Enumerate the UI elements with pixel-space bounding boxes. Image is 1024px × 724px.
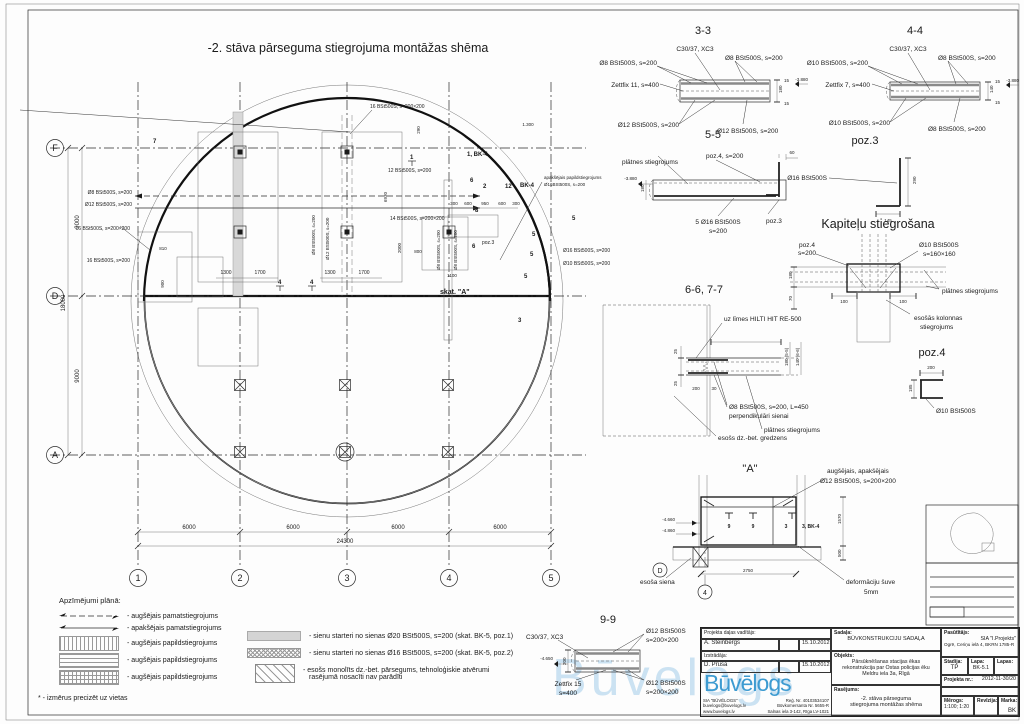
svg-text:-3.880: -3.880: [795, 77, 808, 82]
svg-text:s=200×200: s=200×200: [646, 689, 679, 696]
svg-text:12 BSt500S, s=200: 12 BSt500S, s=200: [388, 168, 431, 174]
svg-text:3, BK-4: 3, BK-4: [802, 524, 819, 530]
svg-text:A: A: [52, 450, 58, 460]
svg-text:1, BK-4: 1, BK-4: [467, 152, 488, 158]
sheets-cell: Lapas:: [994, 657, 1019, 675]
svg-text:Ø8 BSt500S, s=200: Ø8 BSt500S, s=200: [938, 55, 996, 62]
svg-text:6: 6: [472, 244, 476, 250]
svg-text:16 BSt500S, s=200×200: 16 BSt500S, s=200×200: [370, 104, 425, 110]
detail-a-drawing: [653, 475, 846, 599]
svg-text:290: 290: [912, 176, 917, 184]
section-4-4: 4-4 C30/37, XC3 Ø10 BSt500S, s=200 Ø8 BS…: [810, 20, 1024, 140]
svg-text:3-3: 3-3: [695, 25, 711, 37]
svg-text:8: 8: [475, 208, 479, 214]
drawing-sheet: Būvelogs -2. stāva pārseguma stiegrojuma…: [0, 0, 1024, 724]
svg-text:4-4: 4-4: [907, 25, 923, 37]
svg-text:180 (5-5): 180 (5-5): [784, 347, 789, 366]
svg-text:Ø12 BSt500S, s=200: Ø12 BSt500S, s=200: [325, 217, 330, 260]
legend-item: - augšējais papildstiegrojums: [59, 653, 217, 668]
svg-text:1100: 1100: [447, 273, 457, 278]
legend-item: - augšējais papildstiegrojums: [59, 670, 217, 685]
left-dimensions: 9000 9000 18000: [61, 145, 85, 458]
legend-item: - augšējais papildstiegrojums: [59, 636, 217, 651]
legend-item: - apakšējais pamatstiegrojums: [59, 624, 222, 632]
svg-text:apakšējais papildstiegrojums: apakšējais papildstiegrojums: [544, 175, 602, 180]
svg-text:14 BSt500S, s=200×200: 14 BSt500S, s=200×200: [390, 216, 445, 222]
svg-text:1700: 1700: [254, 270, 265, 276]
svg-text:Zettfix 11, s=400: Zettfix 11, s=400: [611, 82, 659, 89]
designer1-name: A. Šteinbergs: [701, 639, 779, 651]
svg-text:stiegrojums: stiegrojums: [920, 324, 954, 331]
svg-text:2750: 2750: [743, 568, 754, 573]
svg-text:Ø8 BSt500S, s=200, L=450: Ø8 BSt500S, s=200, L=450: [729, 404, 809, 411]
svg-text:Zettfix 7, s=400: Zettfix 7, s=400: [825, 82, 870, 89]
svg-text:600: 600: [498, 201, 506, 206]
svg-text:perpendikulāri sienai: perpendikulāri sienai: [729, 413, 789, 420]
company-info: SIA "BŪVĒLOGS"buvelogs@buvelogs.lvwww.bu…: [703, 698, 759, 714]
svg-text:BK-4: BK-4: [520, 183, 535, 189]
svg-text:290: 290: [416, 126, 421, 134]
svg-text:6000: 6000: [391, 525, 405, 531]
svg-text:5 Ø16 BSt500S: 5 Ø16 BSt500S: [695, 219, 741, 226]
svg-text:5: 5: [532, 232, 536, 238]
svg-text:1700: 1700: [358, 270, 369, 276]
svg-text:15: 15: [784, 78, 790, 83]
svg-text:9: 9: [752, 524, 755, 530]
svg-text:24300: 24300: [337, 539, 354, 545]
project-no-cell: Projekta nr.: 2012-11-30/20: [941, 675, 1019, 687]
svg-text:9000: 9000: [75, 369, 81, 383]
object-cell: Objekts: Pārsūknēšanas stacijas ēkas rek…: [831, 651, 941, 685]
svg-text:Ø12 BSt500S, s=200×200: Ø12 BSt500S, s=200×200: [820, 478, 896, 485]
svg-text:Ø16 BSt500S: Ø16 BSt500S: [787, 175, 827, 182]
svg-text:5-5: 5-5: [705, 129, 721, 141]
title-block: Projekta daļas vadītājs: A. Šteinbergs 1…: [700, 627, 1020, 717]
svg-text:180: 180: [778, 85, 783, 93]
svg-text:100: 100: [899, 299, 907, 304]
svg-text:Ø8 BSt500S, s=200: Ø8 BSt500S, s=200: [599, 60, 657, 67]
svg-text:6930: 6930: [383, 191, 388, 202]
svg-text:200: 200: [927, 365, 935, 370]
svg-text:Ø8 BSt500S, s=200: Ø8 BSt500S, s=200: [725, 55, 783, 62]
section-cell: Sadaļa: BŪVKONSTRUKCIJU SADAĻA: [831, 628, 941, 651]
svg-text:2: 2: [483, 184, 487, 190]
svg-text:poz.4, s=200: poz.4, s=200: [706, 153, 744, 160]
drawing-name-cell: Rasējums: -2. stāva pārseguma stiegrojum…: [831, 685, 941, 716]
svg-text:16 BSt500S, s=200: 16 BSt500S, s=200: [87, 258, 130, 264]
role2-label: Izstrādāja:: [701, 651, 831, 661]
legend-item: - augšējais pamatstiegrojums: [59, 612, 218, 620]
section-6-6-7-7: 6-6, 7-7 uz līmes HILTI HIT RE-500 Ø8 BS…: [596, 276, 831, 466]
plan-annotations: 16 BSt500S, s=200×200 Ø8 BSt500S, s=200 …: [76, 104, 611, 296]
svg-text:D: D: [657, 568, 662, 575]
svg-text:Kapiteļu stiegrošana: Kapiteļu stiegrošana: [821, 217, 934, 231]
svg-text:2000: 2000: [397, 242, 402, 253]
scale-cell: Mērogs:1:100; 1:20: [941, 696, 974, 716]
svg-text:12: 12: [505, 184, 512, 190]
svg-text:esošās kolonnas: esošās kolonnas: [914, 315, 963, 322]
section-3-3: 3-3 C30/37, XC3 Ø8 BSt500S, s=200 Ø8 BSt…: [595, 20, 813, 140]
role1-label: Projekta daļas vadītājs:: [701, 628, 831, 639]
svg-text:140: 140: [989, 85, 994, 93]
poz4-drawing: [911, 370, 943, 408]
svg-text:C30/37, XC3: C30/37, XC3: [889, 46, 927, 53]
company-reg-info: Reģ. Nr. 40103534107Būvkomersanta Nr. 56…: [761, 698, 829, 714]
svg-text:1300: 1300: [220, 270, 231, 276]
svg-text:800: 800: [414, 249, 422, 254]
legend-item: - sienu starteri no sienas Ø20 BSt500S, …: [247, 631, 513, 641]
svg-text:-4.660: -4.660: [662, 517, 675, 522]
legend-item: - esošs monolīts dz.-bet. pārsegums, teh…: [255, 664, 489, 683]
floor-plan: -2. stāva pārseguma stiegrojuma montāžas…: [20, 20, 620, 610]
svg-text:Ø12 BSt500S, s=200: Ø12 BSt500S, s=200: [85, 202, 132, 208]
signature1: [779, 639, 799, 651]
stage-cell: Stadija:TP: [941, 657, 968, 675]
reinforcement-zones: [20, 110, 498, 366]
svg-text:plātnes stiegrojums: plātnes stiegrojums: [942, 288, 999, 295]
file-cell: Fails:: [941, 687, 1019, 696]
section-9-9-drawing: [554, 634, 644, 680]
svg-text:9-9: 9-9: [600, 614, 616, 626]
svg-text:3: 3: [785, 524, 788, 530]
legend: Apzīmējumi plānā: - augšējais pamatstieg…: [55, 596, 695, 611]
svg-text:15: 15: [784, 101, 790, 106]
svg-text:-3.880: -3.880: [1006, 78, 1019, 83]
svg-text:-3.880: -3.880: [624, 176, 637, 181]
svg-text:s=400: s=400: [559, 690, 577, 697]
svg-text:5: 5: [530, 252, 534, 258]
svg-text:D: D: [52, 291, 59, 301]
svg-text:Zettfix 15: Zettfix 15: [555, 681, 582, 688]
svg-text:deformāciju šuve: deformāciju šuve: [846, 579, 896, 586]
svg-text:esoša siena: esoša siena: [640, 579, 675, 586]
svg-text:"A": "A": [742, 463, 757, 475]
svg-text:C30/37, XC3: C30/37, XC3: [676, 46, 714, 53]
svg-text:plātnes stiegrojums: plātnes stiegrojums: [764, 427, 821, 434]
site-key-shape: [951, 513, 993, 554]
svg-text:F: F: [52, 143, 58, 153]
detail-a: "A" augšējais, apakšējais Ø12 BSt500S, s…: [636, 450, 926, 610]
svg-text:Ø10 BSt500S, s=200: Ø10 BSt500S, s=200: [829, 120, 891, 127]
client-cell: Pasūtītājs: SIA "I.Projekts" Ogrē, Ceriņ…: [941, 628, 1019, 657]
svg-text:200: 200: [562, 657, 567, 665]
svg-text:5mm: 5mm: [864, 589, 878, 596]
svg-text:600: 600: [464, 201, 472, 206]
svg-text:200: 200: [692, 386, 700, 391]
svg-text:15: 15: [995, 100, 1001, 105]
svg-text:1.300: 1.300: [522, 122, 534, 127]
legend-item: - sienu starteri no sienas Ø16 BSt500S, …: [247, 648, 513, 658]
svg-text:300: 300: [512, 201, 520, 206]
svg-text:300: 300: [450, 201, 458, 206]
plan-title: -2. stāva pārseguma stiegrojuma montāžas…: [208, 41, 489, 55]
svg-text:Ø8 BSt500S, s=200: Ø8 BSt500S, s=200: [453, 230, 458, 270]
svg-text:esošs dz.-bet. gredzens: esošs dz.-bet. gredzens: [718, 435, 788, 442]
date1: 15.10.2012: [799, 639, 831, 651]
svg-text:Ø16 BSt500S, s=200: Ø16 BSt500S, s=200: [563, 248, 610, 254]
svg-text:6000: 6000: [493, 525, 507, 531]
svg-text:1: 1: [410, 155, 414, 161]
svg-text:900: 900: [160, 280, 165, 288]
svg-text:6000: 6000: [182, 525, 196, 531]
mark-cell: Marka:BK: [998, 696, 1019, 716]
revision-cell: Revīzija:: [974, 696, 998, 716]
svg-text:Ø10 BSt500S, s=200: Ø10 BSt500S, s=200: [807, 60, 869, 67]
svg-text:16 BSt500S, s=200×200: 16 BSt500S, s=200×200: [76, 226, 131, 232]
svg-text:Ø12 BSt500S: Ø12 BSt500S: [646, 680, 686, 687]
svg-text:9: 9: [728, 524, 731, 530]
svg-text:Ø10 BSt500S: Ø10 BSt500S: [919, 242, 959, 249]
svg-text:500: 500: [837, 549, 842, 557]
svg-text:4: 4: [278, 280, 282, 286]
section-9-9: 9-9 C30/37, XC3 Ø12 BSt500S s=200×200 Ze…: [518, 606, 713, 721]
svg-text:5: 5: [548, 573, 553, 583]
svg-text:poz.4: poz.4: [799, 242, 815, 249]
svg-text:-4.650: -4.650: [540, 656, 553, 661]
svg-text:25: 25: [673, 380, 678, 386]
svg-text:poz.3: poz.3: [852, 135, 879, 147]
svg-text:Ø10 BSt500S, s=200: Ø10 BSt500S, s=200: [563, 261, 610, 267]
svg-text:25: 25: [673, 348, 678, 354]
svg-text:C30/37, XC3: C30/37, XC3: [526, 634, 564, 641]
svg-text:18000: 18000: [61, 294, 67, 311]
svg-text:140 (6-6): 140 (6-6): [795, 347, 800, 366]
svg-text:s=200: s=200: [798, 250, 816, 257]
svg-text:1: 1: [135, 573, 140, 583]
svg-text:augšējais, apakšējais: augšējais, apakšējais: [827, 468, 890, 475]
svg-text:6000: 6000: [286, 525, 300, 531]
svg-text:uz līmes HILTI HIT RE-500: uz līmes HILTI HIT RE-500: [724, 316, 802, 323]
svg-text:810: 810: [159, 246, 167, 251]
bottom-dimensions: 6000 6000 6000 6000 24300: [135, 525, 554, 549]
svg-text:6-6, 7-7: 6-6, 7-7: [685, 284, 723, 296]
svg-text:15: 15: [995, 79, 1001, 84]
svg-text:Ø8 BSt500S, s=200: Ø8 BSt500S, s=200: [311, 215, 316, 255]
svg-text:plātnes stiegrojums: plātnes stiegrojums: [622, 159, 679, 166]
svg-text:180: 180: [640, 184, 645, 192]
section-key-lines: [930, 577, 1014, 617]
svg-text:1300: 1300: [324, 270, 335, 276]
svg-text:Ø12 BSt500S: Ø12 BSt500S: [646, 628, 686, 635]
section-3-3-drawing: [657, 53, 808, 124]
svg-text:s=160×160: s=160×160: [923, 251, 956, 258]
svg-text:4: 4: [310, 280, 314, 286]
svg-text:Ø16BSt500S, s=200: Ø16BSt500S, s=200: [544, 182, 586, 187]
poz4-detail: poz.4 200 185 Ø10 BSt500S: [876, 336, 1024, 434]
legend-title: Apzīmējumi plānā:: [59, 596, 695, 605]
section-4-4-drawing: [868, 53, 1019, 122]
existing-column-symbols: [235, 380, 454, 462]
svg-text:4: 4: [446, 573, 451, 583]
svg-text:skat. "A": skat. "A": [440, 289, 470, 296]
svg-text:5: 5: [524, 274, 528, 280]
svg-text:Ø10 BSt500S: Ø10 BSt500S: [936, 408, 976, 415]
svg-text:5: 5: [572, 216, 576, 222]
svg-text:s=200: s=200: [709, 228, 727, 235]
svg-text:950: 950: [481, 201, 489, 206]
svg-text:7: 7: [153, 139, 157, 145]
svg-text:s=200×200: s=200×200: [646, 637, 679, 644]
svg-text:100: 100: [840, 299, 848, 304]
svg-text:Ø8 BSt500S, s=200: Ø8 BSt500S, s=200: [436, 230, 441, 270]
svg-text:2: 2: [237, 573, 242, 583]
svg-text:3: 3: [344, 573, 349, 583]
legend-footnote: * - izmērus precizēt uz vietas: [38, 695, 127, 702]
svg-text:-4.860: -4.860: [662, 528, 675, 533]
svg-text:poz.3: poz.3: [482, 240, 494, 246]
svg-text:185: 185: [908, 384, 913, 392]
svg-text:3: 3: [518, 318, 522, 324]
svg-text:Ø8 BSt500S, s=200: Ø8 BSt500S, s=200: [88, 190, 133, 196]
key-plan-thumbnails: [926, 505, 1018, 627]
svg-text:4: 4: [703, 590, 707, 597]
svg-text:poz.4: poz.4: [919, 347, 946, 359]
sheet-cell: Lapa:BK-5.1: [968, 657, 994, 675]
svg-text:30: 30: [711, 386, 717, 391]
svg-text:6: 6: [470, 178, 474, 184]
svg-text:1570: 1570: [837, 513, 842, 524]
